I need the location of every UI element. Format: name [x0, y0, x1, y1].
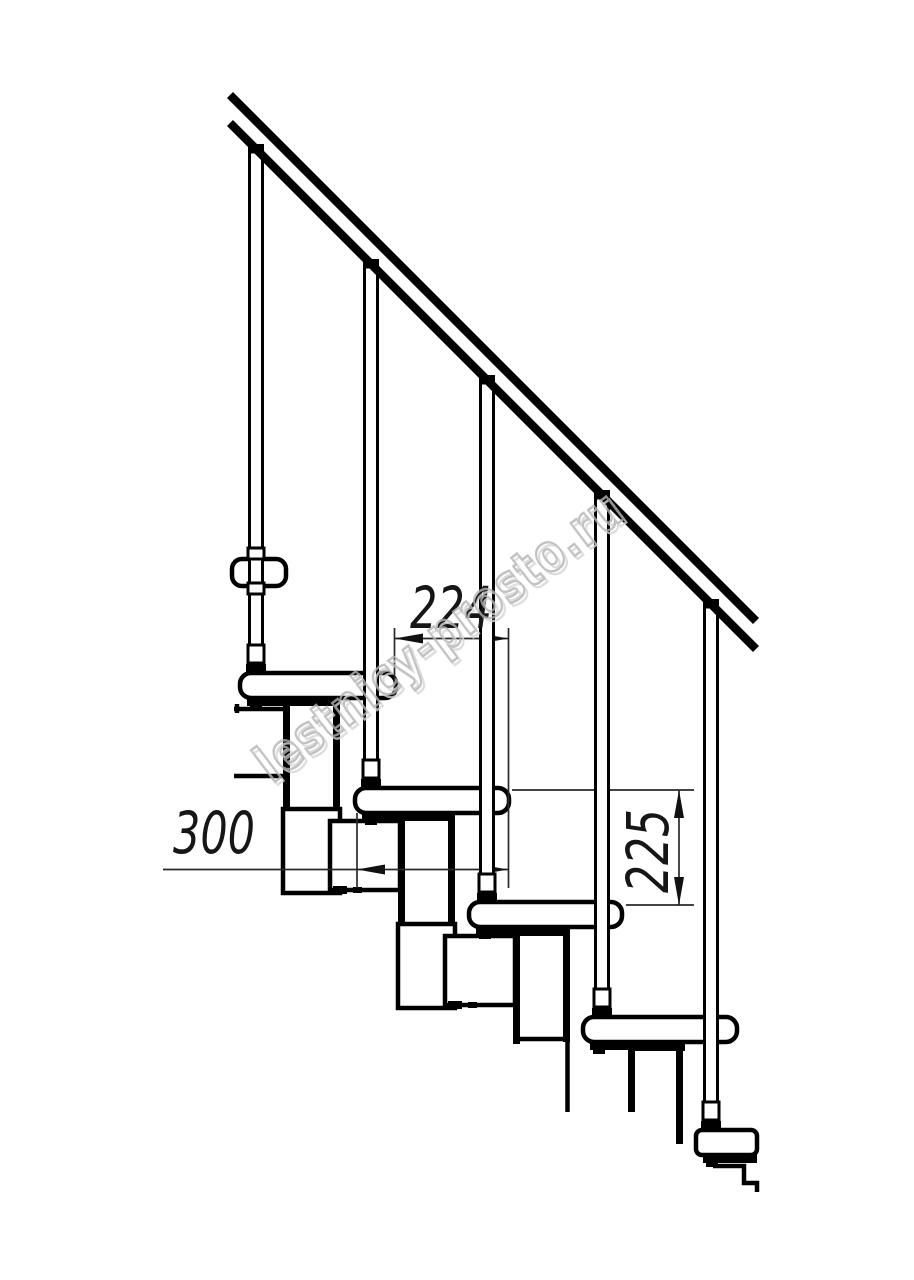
module-bottom-fragment [713, 1166, 757, 1192]
baluster-1 [246, 144, 266, 673]
baluster-5 [701, 599, 721, 1130]
dimension-label-225: 225 [614, 809, 682, 893]
baluster-4 [592, 490, 612, 1017]
tread-6 [696, 1130, 757, 1155]
drawing-page: 224 300 225 lestnicy-prosto.ru lestnicy-… [0, 0, 914, 1280]
dimension-label-300: 300 [173, 799, 255, 867]
staircase-technical-drawing: 224 300 225 lestnicy-prosto.ru lestnicy-… [0, 0, 914, 1280]
watermark-text: lestnicy-prosto.ru [244, 479, 636, 795]
watermark: lestnicy-prosto.ru lestnicy-prosto.ru [244, 479, 639, 798]
module-assembly-4 [628, 1044, 685, 1144]
module-assembly-3 [513, 929, 570, 1112]
